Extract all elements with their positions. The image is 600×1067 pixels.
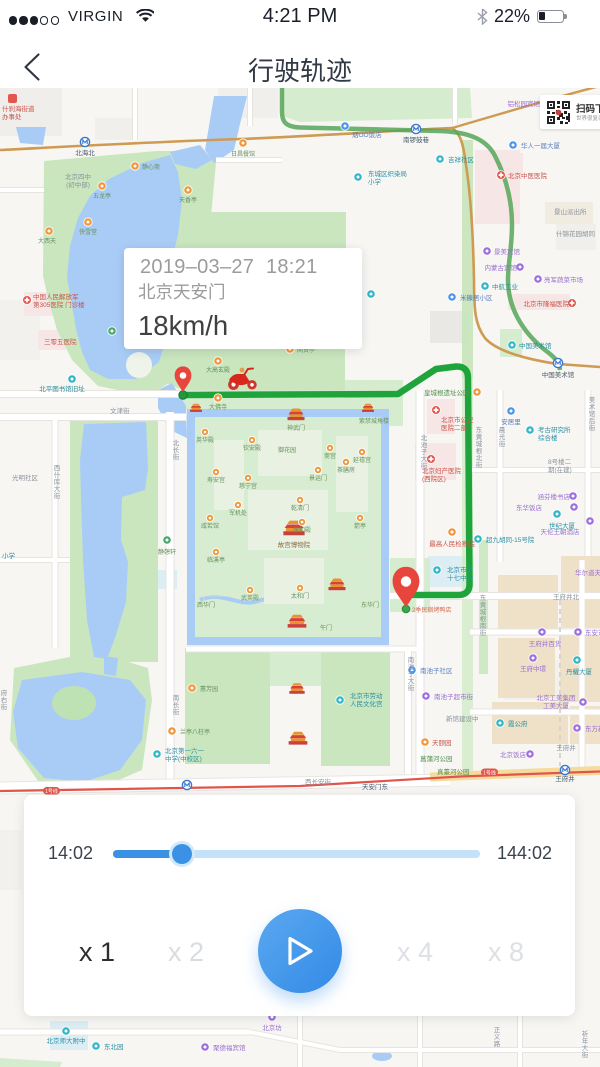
svg-text:快雪堂: 快雪堂 <box>79 228 97 236</box>
svg-text:兰亭八柱亭: 兰亭八柱亭 <box>180 728 210 736</box>
svg-text:蕙芳园: 蕙芳园 <box>200 685 218 693</box>
svg-text:东黄城根南街: 东黄城根南街 <box>480 593 487 637</box>
svg-text:(西院区): (西院区) <box>422 474 446 483</box>
svg-text:涵芬楼书店: 涵芬楼书店 <box>538 492 571 501</box>
svg-text:紫禁城角楼: 紫禁城角楼 <box>359 417 389 425</box>
svg-text:北长街: 北长街 <box>173 439 180 461</box>
svg-text:1号线: 1号线 <box>45 788 58 795</box>
svg-text:神武门: 神武门 <box>287 424 305 432</box>
svg-text:真薹河公园: 真薹河公园 <box>437 767 470 776</box>
svg-text:祈年大街: 祈年大街 <box>582 1029 589 1059</box>
svg-text:菖蒲河公园: 菖蒲河公园 <box>420 754 453 763</box>
svg-text:王府井: 王府井 <box>555 774 575 783</box>
svg-text:午门: 午门 <box>320 624 332 632</box>
svg-text:办事处: 办事处 <box>2 112 22 121</box>
svg-text:南锣鼓巷: 南锣鼓巷 <box>403 135 430 144</box>
svg-text:丹耀大厦: 丹耀大厦 <box>566 667 593 676</box>
svg-text:景山派出所: 景山派出所 <box>554 207 587 216</box>
svg-text:超九胡同-15号院: 超九胡同-15号院 <box>486 535 535 544</box>
svg-text:新馆建设中: 新馆建设中 <box>446 714 479 723</box>
svg-text:东方新: 东方新 <box>585 724 600 733</box>
svg-text:十七中学: 十七中学 <box>447 573 474 582</box>
svg-text:北京市公安: 北京市公安 <box>441 415 474 424</box>
svg-text:光明社区: 光明社区 <box>12 473 39 482</box>
svg-text:华人一届大厦: 华人一届大厦 <box>521 141 561 150</box>
svg-text:五龙亭: 五龙亭 <box>93 192 111 200</box>
svg-text:小学: 小学 <box>2 551 16 560</box>
svg-text:钦安殿: 钦安殿 <box>243 444 261 452</box>
svg-text:箭亭: 箭亭 <box>354 522 366 530</box>
svg-text:府右街: 府右街 <box>1 688 8 711</box>
svg-text:亮军蔬菜市场: 亮军蔬菜市场 <box>544 275 584 284</box>
svg-text:王府中環: 王府中環 <box>520 664 547 673</box>
svg-text:北海北: 北海北 <box>75 148 95 157</box>
svg-text:期(在建): 期(在建) <box>548 465 572 474</box>
svg-text:大西天: 大西天 <box>38 237 56 245</box>
svg-text:西长安街: 西长安街 <box>305 777 332 786</box>
svg-text:铝松园宾馆: 铝松园宾馆 <box>508 99 541 108</box>
svg-text:三零五医院: 三零五医院 <box>44 337 77 346</box>
svg-text:人民文化宫: 人民文化宫 <box>350 699 383 708</box>
svg-text:北京师大附中: 北京师大附中 <box>47 1036 86 1045</box>
svg-text:王府井百货: 王府井百货 <box>529 639 562 648</box>
svg-text:8号楼二: 8号楼二 <box>548 457 572 466</box>
svg-text:东安市场: 东安市场 <box>585 628 600 637</box>
svg-text:静憩轩: 静憩轩 <box>158 548 176 556</box>
svg-text:天香亭: 天香亭 <box>179 196 197 204</box>
svg-text:皇城根遗址公园: 皇城根遗址公园 <box>424 388 470 397</box>
svg-text:中国美术馆: 中国美术馆 <box>542 370 575 379</box>
svg-text:东华饭店: 东华饭店 <box>516 503 543 512</box>
svg-text:西什库大街: 西什库大街 <box>54 464 61 500</box>
svg-text:晨光街: 晨光街 <box>499 426 506 448</box>
svg-text:1号线: 1号线 <box>483 770 496 777</box>
svg-text:静心斋: 静心斋 <box>142 163 160 171</box>
svg-text:正义路: 正义路 <box>494 1026 501 1048</box>
svg-text:北京市第: 北京市第 <box>447 565 474 574</box>
svg-text:霞公府: 霞公府 <box>508 719 528 728</box>
svg-text:大佛寺: 大佛寺 <box>209 403 227 411</box>
svg-text:天安门东: 天安门东 <box>362 782 389 791</box>
svg-text:北池子大街: 北池子大街 <box>421 434 428 470</box>
svg-text:北京第一六一: 北京第一六一 <box>165 746 205 755</box>
svg-text:医院二部: 医院二部 <box>441 423 468 432</box>
svg-text:北京工美集团: 北京工美集团 <box>537 693 576 702</box>
svg-text:延禧宫: 延禧宫 <box>353 456 371 464</box>
svg-text:中航工业: 中航工业 <box>492 282 519 291</box>
svg-text:日昌餐馆: 日昌餐馆 <box>231 150 255 158</box>
svg-text:东城区织染局: 东城区织染局 <box>368 169 407 178</box>
svg-text:景美宾馆: 景美宾馆 <box>494 247 521 256</box>
svg-text:王府井: 王府井 <box>556 743 576 752</box>
svg-text:保和殿: 保和殿 <box>293 526 311 534</box>
svg-text:南池子超市街: 南池子超市街 <box>434 692 474 701</box>
svg-text:工美大厦: 工美大厦 <box>543 701 570 710</box>
svg-text:天伦王朝酒店: 天伦王朝酒店 <box>541 527 581 536</box>
svg-text:寿安宫: 寿安宫 <box>207 476 225 484</box>
svg-text:小学: 小学 <box>368 177 382 186</box>
svg-text:乾清门: 乾清门 <box>291 504 309 512</box>
svg-text:第305医院 门诊楼: 第305医院 门诊楼 <box>33 300 85 309</box>
svg-text:中学(中校区): 中学(中校区) <box>165 754 202 763</box>
svg-text:茶膳房: 茶膳房 <box>337 466 355 474</box>
svg-text:北京饭店: 北京饭店 <box>500 750 527 759</box>
svg-text:文津街: 文津街 <box>110 406 130 415</box>
svg-text:中国人民解放军: 中国人民解放军 <box>33 292 79 301</box>
svg-text:吉祥社区: 吉祥社区 <box>448 155 475 164</box>
svg-text:考古研究所: 考古研究所 <box>538 425 571 434</box>
svg-text:北京四中: 北京四中 <box>65 172 91 181</box>
svg-text:美术馆后街: 美术馆后街 <box>589 395 596 432</box>
svg-text:(初中部): (初中部) <box>66 180 90 189</box>
svg-text:北京中医医院: 北京中医医院 <box>508 171 548 180</box>
svg-text:聚德福宾馆: 聚德福宾馆 <box>213 1043 246 1052</box>
svg-text:御花园: 御花园 <box>278 446 296 454</box>
svg-text:北平图书馆旧址: 北平图书馆旧址 <box>39 384 85 393</box>
svg-text:综合楼: 综合楼 <box>538 433 558 442</box>
svg-text:2季民宿烤鸭店: 2季民宿烤鸭店 <box>412 606 451 614</box>
svg-text:东黄城根北街: 东黄城根北街 <box>476 425 483 469</box>
svg-text:景运门: 景运门 <box>309 474 327 482</box>
svg-text:南池子社区: 南池子社区 <box>420 666 453 675</box>
svg-text:烟OO饭店: 烟OO饭店 <box>352 130 382 139</box>
svg-text:东北园: 东北园 <box>104 1042 124 1051</box>
svg-text:最高人民检察院: 最高人民检察院 <box>429 539 475 548</box>
svg-text:军机处: 军机处 <box>229 509 247 517</box>
svg-text:故宫博物院: 故宫博物院 <box>278 540 311 549</box>
svg-text:王府井北: 王府井北 <box>553 592 580 601</box>
svg-text:安居里: 安居里 <box>501 417 521 426</box>
svg-text:武英殿: 武英殿 <box>241 594 259 602</box>
svg-text:什刹海街道: 什刹海街道 <box>2 104 35 113</box>
svg-text:太和门: 太和门 <box>291 592 309 600</box>
svg-text:北京市隆福医院: 北京市隆福医院 <box>524 299 570 308</box>
svg-text:西华门: 西华门 <box>197 601 215 609</box>
svg-text:咸若馆: 咸若馆 <box>201 522 219 530</box>
svg-text:华尔道夫: 华尔道夫 <box>575 568 600 577</box>
svg-text:东华门: 东华门 <box>361 601 379 609</box>
svg-text:中国美术馆: 中国美术馆 <box>519 341 552 350</box>
svg-text:斋宫: 斋宫 <box>324 452 336 460</box>
svg-text:北京坊: 北京坊 <box>262 1023 282 1032</box>
svg-text:什锦花园胡同: 什锦花园胡同 <box>556 229 595 238</box>
svg-text:米糠居小区: 米糠居小区 <box>460 293 493 302</box>
svg-text:天颐园: 天颐园 <box>432 739 452 747</box>
svg-text:北京市劳动: 北京市劳动 <box>350 691 383 700</box>
svg-text:慈宁宫: 慈宁宫 <box>239 482 257 490</box>
svg-text:南长街: 南长街 <box>173 693 180 716</box>
svg-text:大高玄殿: 大高玄殿 <box>206 366 230 374</box>
svg-text:内蒙古宾馆: 内蒙古宾馆 <box>485 263 518 272</box>
svg-text:英华殿: 英华殿 <box>196 436 214 444</box>
svg-text:临溪亭: 临溪亭 <box>207 556 225 564</box>
svg-text:南池子大街: 南池子大街 <box>408 655 415 692</box>
svg-text:北京妇产医院: 北京妇产医院 <box>422 466 462 475</box>
